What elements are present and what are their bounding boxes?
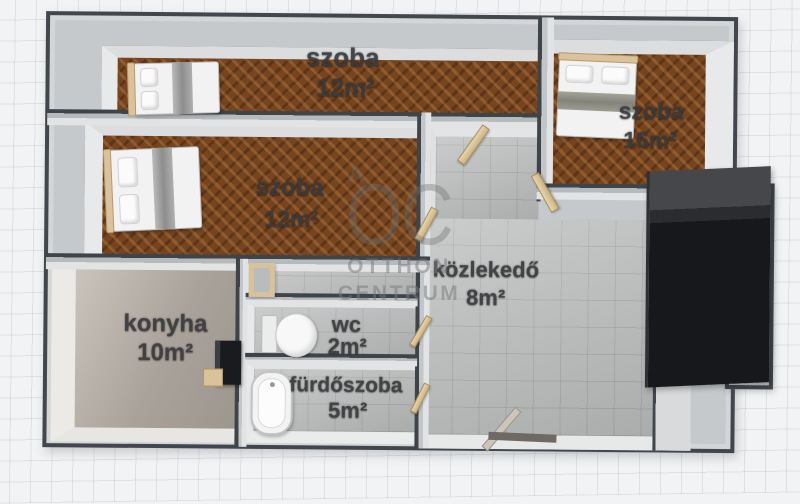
bed-pillow <box>117 157 138 188</box>
room-label-konyha-area: 10m² <box>137 339 193 367</box>
room-label-wc-area: 2m² <box>328 334 367 360</box>
bathtub <box>250 371 293 435</box>
room-label-szoba-top-name: szoba <box>306 42 380 74</box>
bed-blanket-stripe <box>152 147 176 230</box>
wardrobe <box>645 166 771 387</box>
room-label-konyha-name: konyha <box>123 310 207 339</box>
bed-pillow <box>119 194 140 225</box>
bathtub-drain <box>270 382 275 387</box>
bed-pillow <box>141 91 159 110</box>
kitchen-counter <box>203 368 223 386</box>
room-label-szoba-middle-name: szoba <box>255 174 323 203</box>
door-frame <box>249 263 275 297</box>
bed-pillow <box>565 65 594 84</box>
toilet <box>275 313 317 357</box>
room-label-szoba-middle-area: 12m² <box>264 206 318 233</box>
room-label-furdoszoba-area: 5m² <box>328 398 367 424</box>
bed-pillow <box>140 68 158 87</box>
room-label-furdoszoba-name: fürdőszoba <box>289 373 402 398</box>
room-label-szoba-right-area: 16m² <box>623 127 677 154</box>
bed-headboard <box>127 62 136 116</box>
room-label-kozlekedo-area: 8m² <box>466 285 505 311</box>
room-label-kozlekedo-name: közlekedő <box>433 256 540 283</box>
bed-pillow <box>601 66 630 85</box>
room-label-szoba-top-area: 12m² <box>316 74 375 104</box>
bed-blanket-stripe <box>172 62 193 115</box>
room-label-szoba-right-name: szoba <box>619 98 684 126</box>
wall-hallway-step <box>652 376 691 450</box>
bed <box>109 146 202 232</box>
apartment-floor-plan: szoba 12m² szoba 16m² szoba 12m² közleke… <box>42 11 778 454</box>
bed <box>133 61 220 115</box>
hallway-upper-floor <box>430 126 539 227</box>
